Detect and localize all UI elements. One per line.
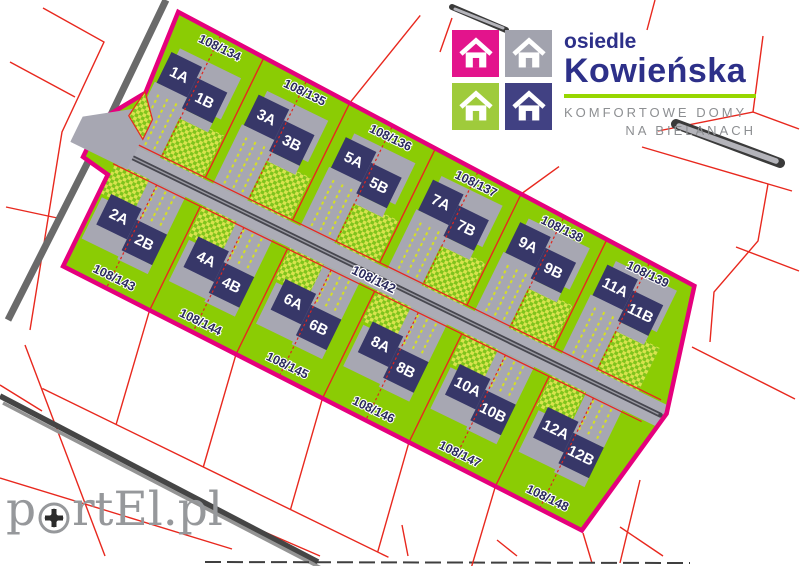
logo-divider [564, 94, 756, 98]
road-southwest [0, 396, 318, 562]
road-stub-north-core [455, 9, 503, 28]
house-icon [505, 30, 552, 77]
logo-house-grid [452, 30, 552, 138]
watermark-text-pre: p [6, 486, 36, 533]
developer-logo: osiedle Kowieńska KOMFORTOWE DOMY NA BIE… [452, 30, 782, 138]
logo-tagline-2: NA BIELANACH [564, 123, 756, 138]
south-boundary-line [205, 562, 690, 563]
estate-name-prefix: osiedle [564, 30, 756, 53]
house-icon [452, 83, 499, 130]
watermark: prtEl.pl [6, 486, 223, 533]
house-icon [505, 83, 552, 130]
house-icon [452, 30, 499, 77]
watermark-text-post: rtEl.pl [72, 486, 223, 533]
logo-tagline-1: KOMFORTOWE DOMY [564, 105, 756, 120]
estate-name: Kowieńska [564, 53, 756, 89]
city-crest-icon [37, 496, 71, 530]
site-plan-screenshot: 108/134 108/135 108/136 108/137 108/138 … [0, 0, 800, 566]
